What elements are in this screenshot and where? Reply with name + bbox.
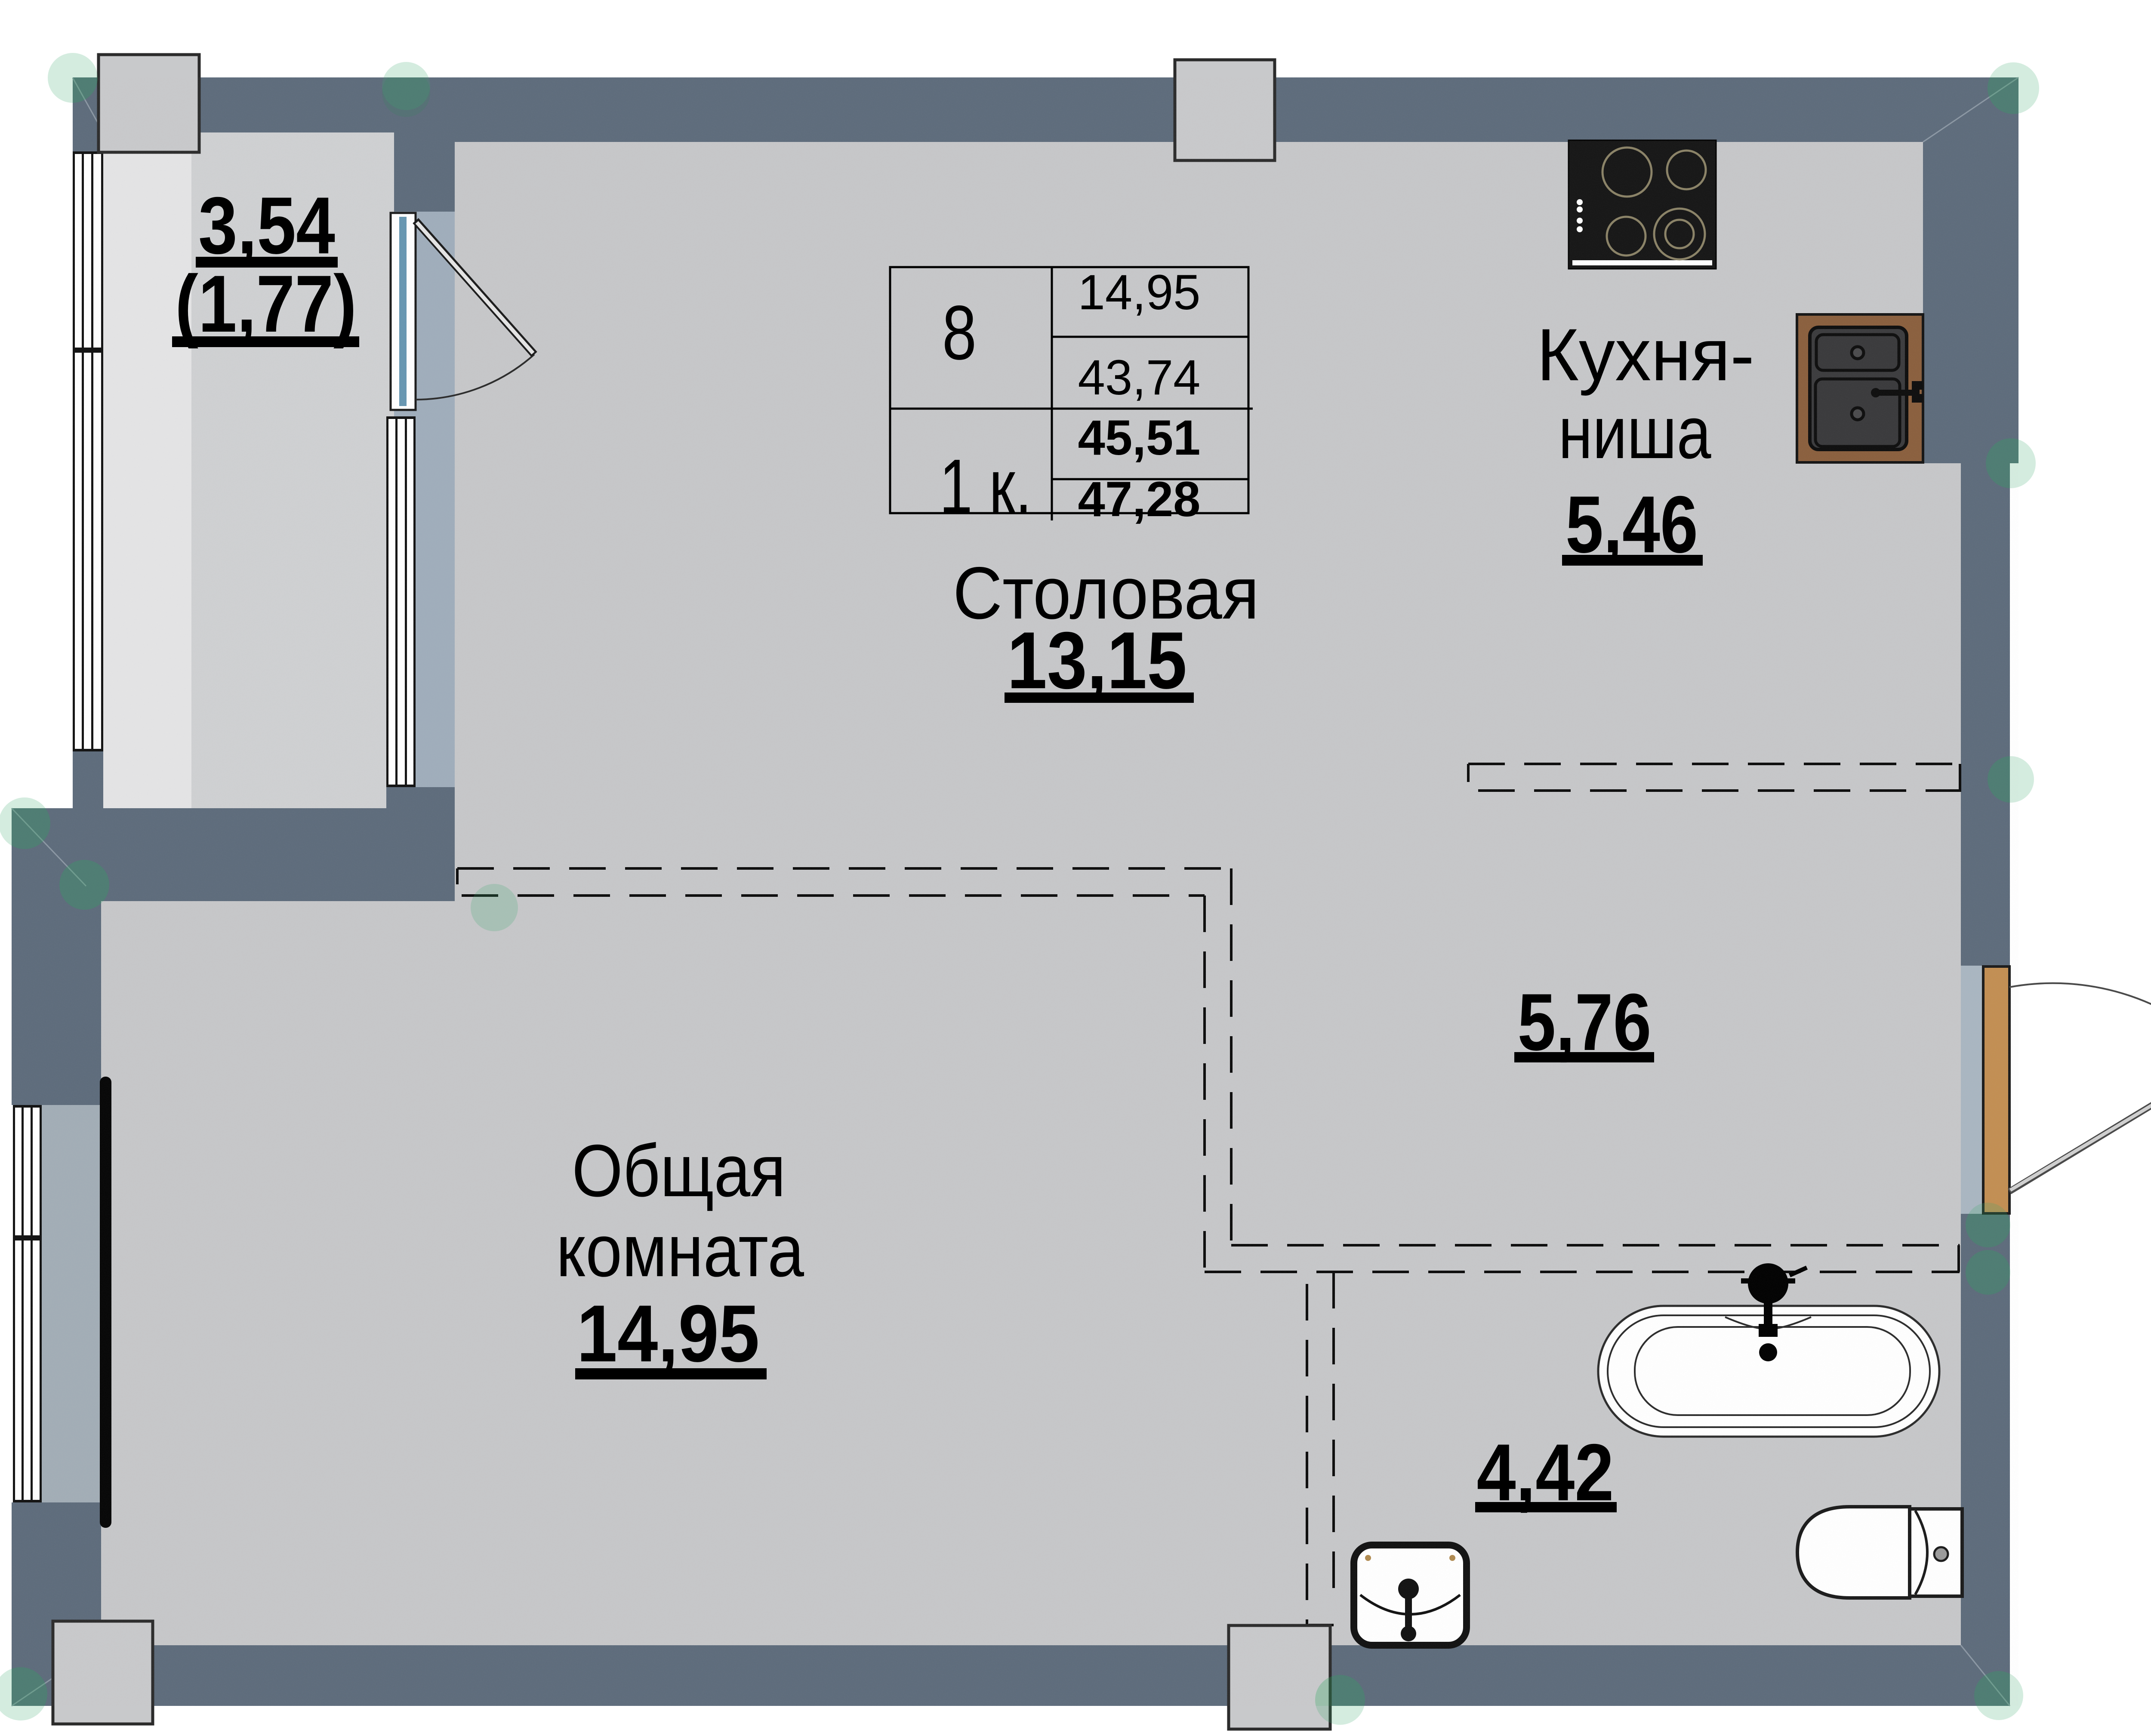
svg-text:13,15: 13,15 [1007,615,1187,705]
svg-text:45,51: 45,51 [1078,410,1201,465]
svg-text:1 к.: 1 к. [940,443,1032,530]
svg-text:43,74: 43,74 [1078,350,1201,405]
svg-text:47,28: 47,28 [1078,472,1201,527]
svg-text:14,95: 14,95 [577,1288,760,1379]
svg-text:14,95: 14,95 [1078,265,1201,320]
svg-text:(1,77): (1,77) [175,259,357,349]
svg-text:комната: комната [556,1210,804,1292]
svg-text:Кухня-: Кухня- [1537,314,1754,396]
svg-text:Общая: Общая [572,1130,786,1212]
svg-text:ниша: ниша [1559,391,1711,474]
svg-text:8: 8 [942,289,977,376]
